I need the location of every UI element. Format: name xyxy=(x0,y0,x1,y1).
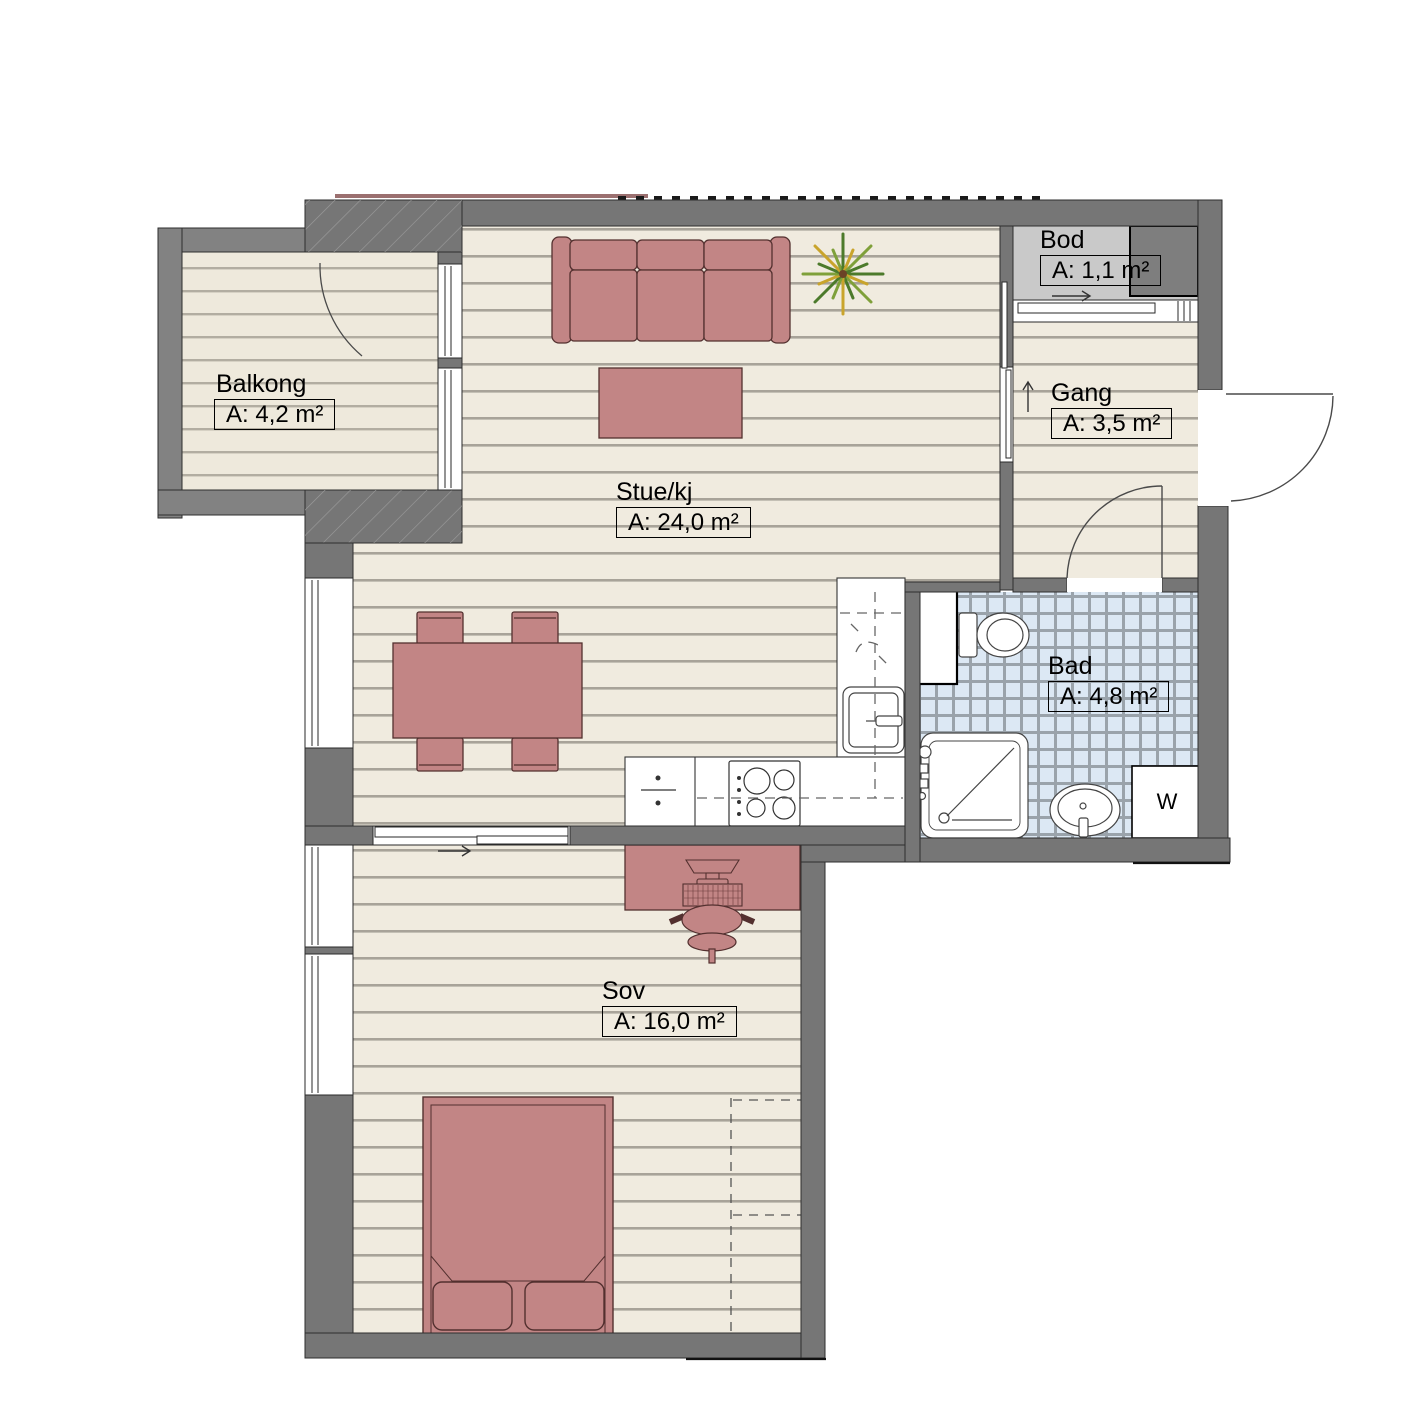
bed xyxy=(423,1097,613,1337)
room-area-gang: A: 3,5 m² xyxy=(1051,408,1172,439)
cistern-shaft xyxy=(918,590,957,684)
window xyxy=(305,845,353,947)
coffee-table xyxy=(599,368,742,438)
dining-chair xyxy=(417,612,463,645)
dining-table xyxy=(393,643,582,738)
potted-plant-icon xyxy=(803,234,883,314)
stove xyxy=(729,761,800,826)
room-area-balkong: A: 4,2 m² xyxy=(214,399,335,430)
room-label-gang: Gang A: 3,5 m² xyxy=(1051,381,1172,439)
dining-chair xyxy=(512,612,558,645)
washing-machine-label: W xyxy=(1132,766,1202,838)
pillow xyxy=(525,1282,604,1330)
kitchen-sink xyxy=(843,687,904,753)
room-name-gang: Gang xyxy=(1051,381,1172,406)
window xyxy=(305,954,353,1095)
floor-plan-drawing xyxy=(0,0,1403,1408)
shower xyxy=(916,733,1028,838)
bathroom-sink xyxy=(1050,784,1120,837)
room-name-bad: Bad xyxy=(1048,654,1169,679)
room-area-stue: A: 24,0 m² xyxy=(616,507,751,538)
floor-plan: Balkong A: 4,2 m² Stue/kj A: 24,0 m² Bod… xyxy=(0,0,1403,1408)
room-label-stue: Stue/kj A: 24,0 m² xyxy=(616,480,751,538)
pillow xyxy=(433,1282,512,1330)
room-name-bod: Bod xyxy=(1040,228,1161,253)
keyboard-icon xyxy=(683,884,742,906)
toilet xyxy=(959,613,1029,657)
sliding-door-bedroom xyxy=(373,826,570,845)
entrance-door xyxy=(1198,390,1333,506)
sofa xyxy=(552,237,790,343)
room-area-bod: A: 1,1 m² xyxy=(1040,255,1161,286)
room-name-balkong: Balkong xyxy=(216,372,335,397)
window xyxy=(305,578,353,748)
window xyxy=(438,368,462,490)
room-label-bod: Bod A: 1,1 m² xyxy=(1040,228,1161,286)
room-label-sov: Sov A: 16,0 m² xyxy=(602,979,737,1037)
room-name-stue: Stue/kj xyxy=(616,480,751,505)
balcony-door-opening xyxy=(438,264,462,358)
room-area-sov: A: 16,0 m² xyxy=(602,1006,737,1037)
room-label-balkong: Balkong A: 4,2 m² xyxy=(216,372,335,430)
room-area-bad: A: 4,8 m² xyxy=(1048,681,1169,712)
room-label-bad: Bad A: 4,8 m² xyxy=(1048,654,1169,712)
hallway-floor xyxy=(1013,322,1198,578)
adjacent-structure-lines xyxy=(335,194,1050,199)
dining-chair xyxy=(512,738,558,771)
dining-chair xyxy=(417,738,463,771)
room-name-sov: Sov xyxy=(602,979,737,1004)
sliding-door-storage xyxy=(1013,300,1198,322)
